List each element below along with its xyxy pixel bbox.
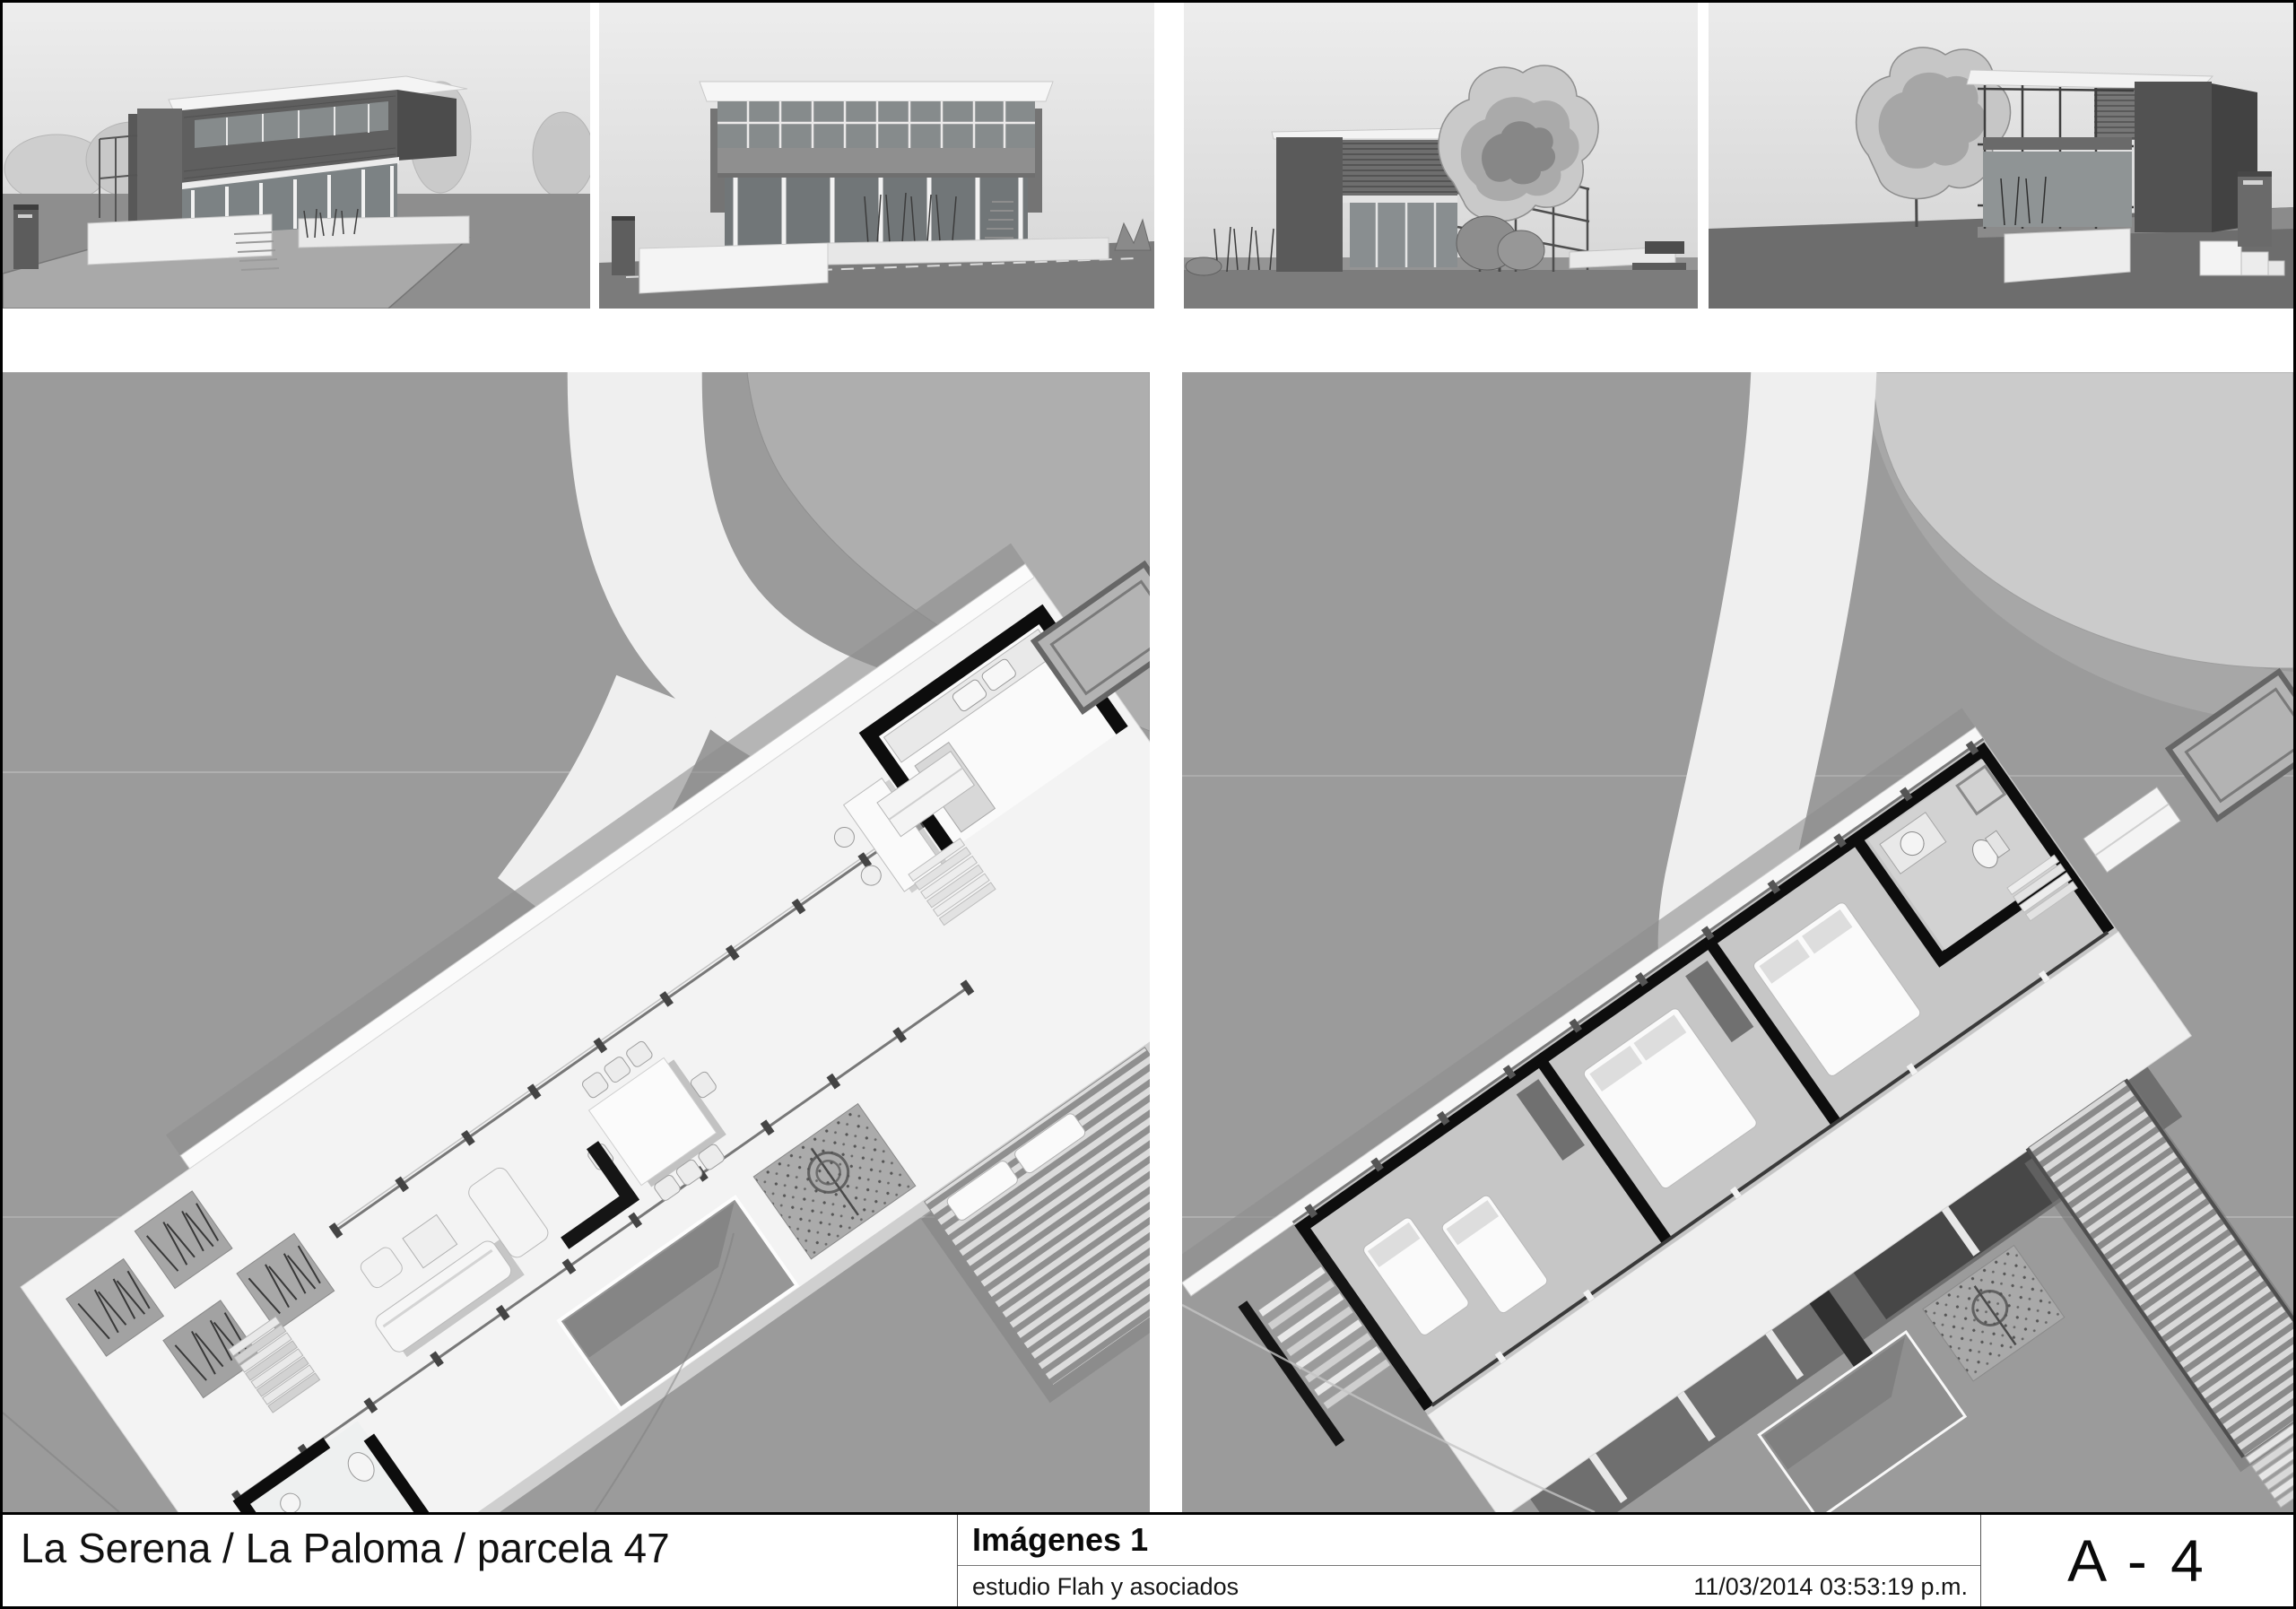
balcony-slab — [1983, 137, 2132, 150]
spandrel-band — [717, 148, 1035, 175]
project-title: La Serena / La Paloma / parcela 47 — [21, 1524, 670, 1572]
sheet-number: A - 4 — [2067, 1526, 2207, 1595]
glazing — [1350, 203, 1457, 267]
glazing — [1983, 152, 2132, 227]
render-rear-tree-view — [1184, 3, 1698, 309]
project-cell: La Serena / La Paloma / parcela 47 — [3, 1515, 958, 1606]
drawing-title-row: Imágenes 1 — [958, 1515, 1980, 1566]
rear-three-quarter-art — [1709, 3, 2293, 309]
mailbox-pillar — [13, 204, 39, 269]
house-body — [700, 82, 1053, 247]
slab-edge — [1343, 196, 1457, 203]
roof-slab — [700, 82, 1053, 101]
render-street-perspective — [3, 3, 590, 309]
louvre-band — [2094, 88, 2135, 140]
house-body — [1272, 128, 1467, 272]
mailbox-pillar — [612, 216, 635, 275]
front-elevation-art — [599, 3, 1154, 309]
rear-tree-art — [1184, 3, 1698, 309]
garden-wall-right — [299, 216, 469, 248]
utility-pillar — [2238, 171, 2272, 247]
bench-dark — [1632, 263, 1686, 270]
foreground-ground — [1184, 268, 1698, 309]
sheet-number-cell: A - 4 — [1980, 1515, 2293, 1606]
firm-date-row: estudio Flah y asociados 11/03/2014 03:5… — [958, 1566, 1980, 1606]
firm-name: estudio Flah y asociados — [972, 1573, 1239, 1601]
render-rear-three-quarter — [1709, 3, 2293, 309]
print-datetime: 11/03/2014 03:53:19 p.m. — [1693, 1573, 1968, 1601]
render-front-elevation — [599, 3, 1154, 309]
architectural-sheet: La Serena / La Paloma / parcela 47 Imáge… — [0, 0, 2296, 1609]
dark-tower-front — [2135, 82, 2212, 232]
upper-floor-art — [1182, 372, 2293, 1512]
low-bush — [1186, 257, 1222, 275]
ground-floor-art — [3, 372, 1150, 1512]
dark-tower — [1276, 137, 1343, 272]
plan-upper-floor — [1182, 372, 2293, 1512]
upper-side — [397, 90, 457, 161]
plan-ground-floor — [3, 372, 1150, 1512]
garden-wall-left — [88, 214, 272, 265]
ground-floor-glazing — [725, 178, 1028, 246]
street-perspective-art — [3, 3, 590, 309]
title-block: La Serena / La Paloma / parcela 47 Imáge… — [3, 1512, 2293, 1606]
planter-dark — [1645, 241, 1684, 254]
drawing-cell: Imágenes 1 estudio Flah y asociados 11/0… — [958, 1515, 1980, 1606]
drawing-title: Imágenes 1 — [972, 1521, 1148, 1559]
